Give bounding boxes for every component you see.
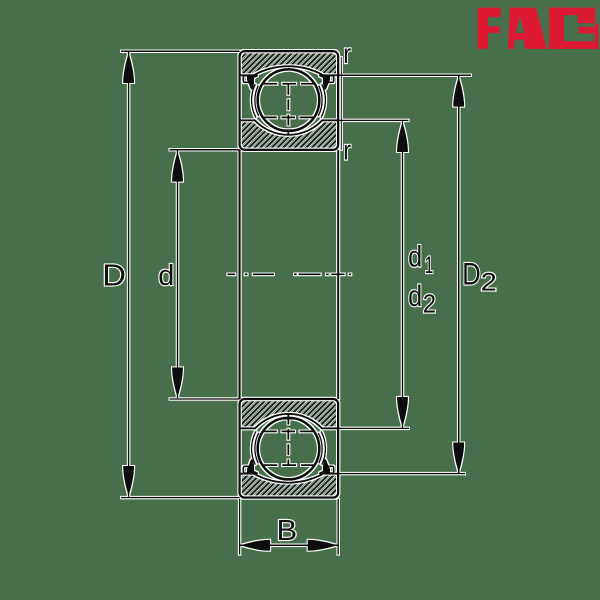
svg-text:1: 1	[425, 252, 434, 279]
svg-text:2: 2	[423, 289, 436, 318]
svg-text:D: D	[462, 257, 480, 292]
svg-text:d: d	[408, 240, 422, 274]
svg-text:D: D	[102, 257, 126, 292]
svg-text:2: 2	[481, 268, 497, 297]
svg-text:d: d	[158, 260, 174, 292]
svg-text:B: B	[277, 515, 298, 547]
svg-text:r: r	[343, 39, 351, 69]
svg-text:d: d	[408, 279, 422, 313]
svg-text:r: r	[343, 136, 351, 166]
